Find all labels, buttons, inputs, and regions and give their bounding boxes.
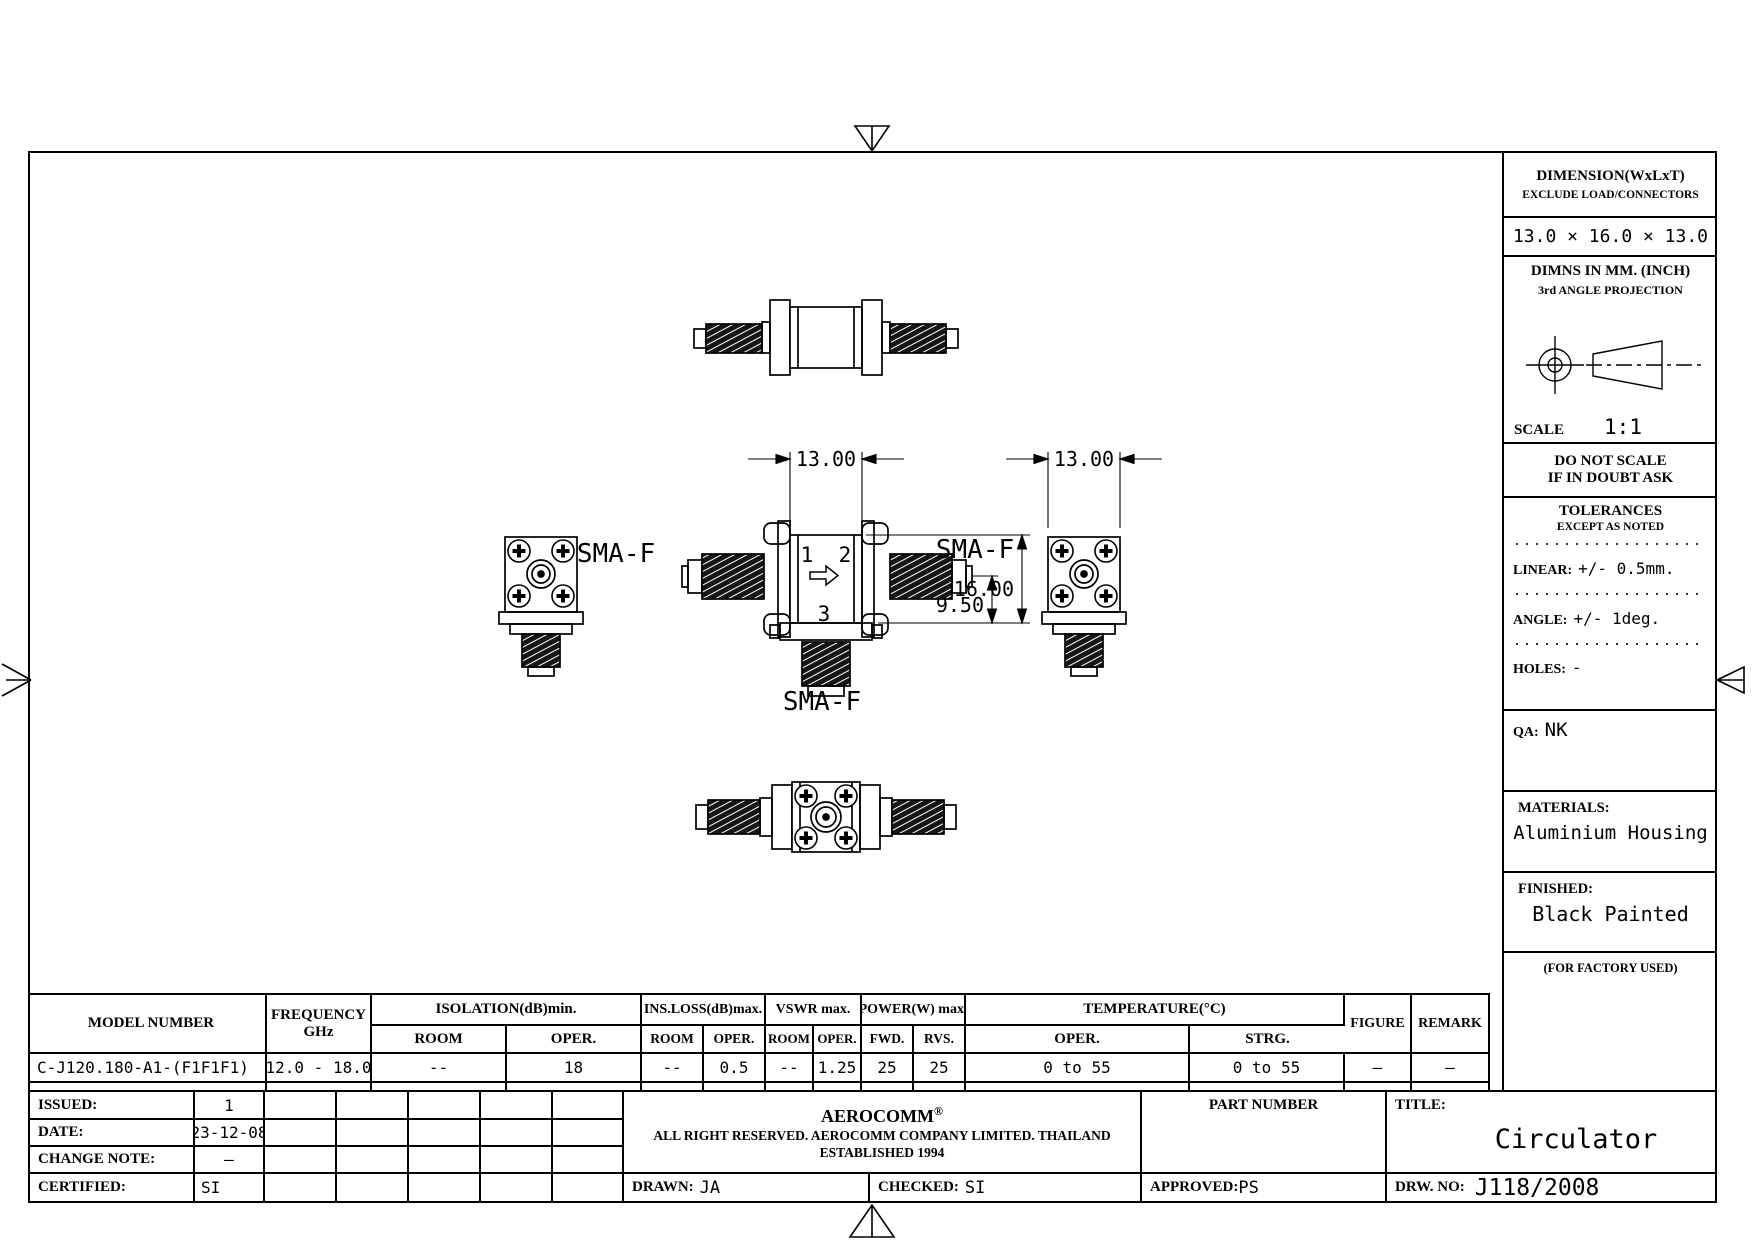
empty-cell xyxy=(553,1147,624,1174)
date-value: 23-12-08 xyxy=(195,1120,265,1147)
frequency-value: 12.0 - 18.0 xyxy=(267,1054,372,1083)
frequency-header-line2: GHz xyxy=(304,1024,334,1041)
part-number-cell: PART NUMBER xyxy=(1142,1092,1387,1174)
title-label: TITLE: xyxy=(1395,1097,1446,1114)
bottom-center-mark xyxy=(850,1205,894,1237)
factory-note: (FOR FACTORY USED) xyxy=(1543,961,1677,976)
panel-projection: DIMNS IN MM. (INCH) 3rd ANGLE PROJECTION… xyxy=(1504,257,1717,444)
insloss-room-header: ROOM xyxy=(642,1026,704,1054)
empty-cell xyxy=(409,1120,481,1147)
company-info: AEROCOMM® ALL RIGHT RESERVED. AEROCOMM C… xyxy=(624,1092,1142,1174)
power-rvs-value: 25 xyxy=(914,1054,966,1083)
qa-label: QA: xyxy=(1513,725,1539,741)
tolerances-title: TOLERANCES xyxy=(1559,503,1662,520)
vswr-oper-header: OPER. xyxy=(814,1026,862,1054)
qa-value: NK xyxy=(1545,719,1568,741)
empty-cell xyxy=(409,1092,481,1120)
panel-materials: MATERIALS: Aluminium Housing xyxy=(1504,792,1717,873)
company-name-text: AEROCOMM xyxy=(821,1106,934,1126)
right-center-mark xyxy=(1717,667,1744,693)
if-in-doubt-text: IF IN DOUBT ASK xyxy=(1548,470,1673,487)
materials-value: Aluminium Housing xyxy=(1513,822,1707,844)
empty-cell xyxy=(265,1174,337,1201)
drw-no-value: J118/2008 xyxy=(1475,1175,1600,1201)
company-rights: ALL RIGHT RESERVED. AEROCOMM COMPANY LIM… xyxy=(653,1128,1110,1144)
drw-no-cell: DRW. NO: J118/2008 xyxy=(1387,1174,1715,1201)
figure-header: FIGURE xyxy=(1345,995,1412,1054)
part-number-label: PART NUMBER xyxy=(1142,1097,1385,1114)
scale-value: 1:1 xyxy=(1604,415,1642,439)
empty-cell xyxy=(481,1120,553,1147)
change-note-label: CHANGE NOTE: xyxy=(30,1147,195,1174)
panel-finished: FINISHED: Black Painted xyxy=(1504,873,1717,953)
left-center-mark xyxy=(2,664,31,696)
angle-label: ANGLE: xyxy=(1513,613,1567,629)
date-label: DATE: xyxy=(30,1120,195,1147)
drawing-title-cell: TITLE: Circulator xyxy=(1387,1092,1715,1174)
approved-cell: APPROVED: PS xyxy=(1142,1174,1387,1201)
empty-cell xyxy=(481,1174,553,1201)
holes-value: - xyxy=(1572,658,1582,677)
empty-cell xyxy=(265,1147,337,1174)
vswr-room-value: -- xyxy=(766,1054,814,1083)
certified-label: CERTIFIED: xyxy=(30,1174,195,1201)
empty-cell xyxy=(337,1174,409,1201)
do-not-scale-text: DO NOT SCALE xyxy=(1554,453,1666,470)
isolation-room-header: ROOM xyxy=(372,1026,507,1054)
linear-value: +/- 0.5mm. xyxy=(1578,559,1674,578)
tolerances-note: EXCEPT AS NOTED xyxy=(1557,521,1664,533)
projection-note: 3rd ANGLE PROJECTION xyxy=(1538,283,1683,298)
materials-label: MATERIALS: xyxy=(1518,800,1610,817)
issued-label: ISSUED: xyxy=(30,1092,195,1120)
scale-label: SCALE xyxy=(1514,422,1564,439)
linear-label: LINEAR: xyxy=(1513,563,1572,579)
empty-cell xyxy=(481,1092,553,1120)
dimension-note: EXCLUDE LOAD/CONNECTORS xyxy=(1522,189,1698,201)
units-note: DIMNS IN MM. (INCH) xyxy=(1531,263,1690,280)
registered-mark: ® xyxy=(934,1104,943,1118)
change-note-value: – xyxy=(195,1147,265,1174)
insloss-group-header: INS.LOSS(dB)max. xyxy=(642,995,766,1026)
drawn-value: JA xyxy=(700,1178,720,1198)
empty-cell xyxy=(553,1092,624,1120)
spec-table: MODEL NUMBER FREQUENCY GHz ISOLATION(dB)… xyxy=(28,993,1490,1092)
issued-value: 1 xyxy=(195,1092,265,1120)
checked-value: SI xyxy=(965,1178,985,1198)
temperature-group-header: TEMPERATURE(°C) xyxy=(966,995,1345,1026)
empty-cell xyxy=(265,1092,337,1120)
temp-oper-value: 0 to 55 xyxy=(966,1054,1190,1083)
insloss-oper-value: 0.5 xyxy=(704,1054,766,1083)
remark-value: – xyxy=(1412,1054,1488,1083)
isolation-oper-header: OPER. xyxy=(507,1026,642,1054)
company-name: AEROCOMM® xyxy=(821,1104,943,1127)
vswr-oper-value: 1.25 xyxy=(814,1054,862,1083)
drw-no-label: DRW. NO: xyxy=(1395,1179,1465,1196)
empty-cell xyxy=(337,1120,409,1147)
finished-label: FINISHED: xyxy=(1518,881,1593,898)
empty-cell xyxy=(337,1092,409,1120)
panel-tolerances: TOLERANCES EXCEPT AS NOTED LINEAR: +/- 0… xyxy=(1504,498,1717,711)
dimension-title: DIMENSION(WxLxT) xyxy=(1536,168,1684,185)
power-rvs-header: RVS. xyxy=(914,1026,966,1054)
panel-qa: QA: NK xyxy=(1504,711,1717,792)
title-block: ISSUED: 1 DATE: 23-12-08 CHANGE NOTE: – … xyxy=(28,1090,1717,1203)
vswr-group-header: VSWR max. xyxy=(766,995,862,1026)
approved-value: PS xyxy=(1238,1178,1258,1198)
panel-do-not-scale: DO NOT SCALE IF IN DOUBT ASK xyxy=(1504,444,1717,498)
vswr-room-header: ROOM xyxy=(766,1026,814,1054)
insloss-room-value: -- xyxy=(642,1054,704,1083)
temp-strg-value: 0 to 55 xyxy=(1190,1054,1345,1083)
empty-cell xyxy=(409,1174,481,1201)
isolation-oper-value: 18 xyxy=(507,1054,642,1083)
power-fwd-value: 25 xyxy=(862,1054,914,1083)
isolation-room-value: -- xyxy=(372,1054,507,1083)
figure-value: – xyxy=(1345,1054,1412,1083)
checked-label: CHECKED: xyxy=(878,1179,959,1196)
dimension-value: 13.0 × 16.0 × 13.0 xyxy=(1513,226,1708,247)
empty-cell xyxy=(409,1147,481,1174)
angle-value: +/- 1deg. xyxy=(1573,609,1660,628)
finished-value: Black Painted xyxy=(1532,902,1689,926)
power-group-header: POWER(W) max. xyxy=(862,995,966,1026)
holes-label: HOLES: xyxy=(1513,662,1566,678)
temp-oper-header: OPER. xyxy=(966,1026,1190,1054)
panel-dimension: DIMENSION(WxLxT) EXCLUDE LOAD/CONNECTORS xyxy=(1504,153,1717,218)
temp-strg-header: STRG. xyxy=(1190,1026,1345,1054)
drawn-label: DRAWN: xyxy=(632,1179,694,1196)
model-number-value: C-J120.180-A1-(F1F1F1) xyxy=(30,1054,267,1083)
company-established: ESTABLISHED 1994 xyxy=(820,1145,945,1161)
power-fwd-header: FWD. xyxy=(862,1026,914,1054)
model-number-header: MODEL NUMBER xyxy=(30,995,267,1054)
insloss-oper-header: OPER. xyxy=(704,1026,766,1054)
checked-cell: CHECKED: SI xyxy=(870,1174,1142,1201)
engineering-drawing-sheet: { "right_panel": { "dimension_title": "D… xyxy=(0,0,1754,1240)
top-center-mark xyxy=(855,126,889,151)
panel-factory-note: (FOR FACTORY USED) xyxy=(1504,953,1717,1090)
panel-dimension-value: 13.0 × 16.0 × 13.0 xyxy=(1504,218,1717,257)
empty-cell xyxy=(337,1147,409,1174)
frequency-header: FREQUENCY GHz xyxy=(267,995,372,1054)
approved-label: APPROVED: xyxy=(1150,1179,1238,1196)
isolation-group-header: ISOLATION(dB)min. xyxy=(372,995,642,1026)
empty-cell xyxy=(481,1147,553,1174)
info-panel: DIMENSION(WxLxT) EXCLUDE LOAD/CONNECTORS… xyxy=(1502,153,1717,1090)
drawn-cell: DRAWN: JA xyxy=(624,1174,870,1201)
remark-header: REMARK xyxy=(1412,995,1488,1054)
drawing-title: Circulator xyxy=(1387,1124,1715,1155)
empty-cell xyxy=(553,1120,624,1147)
empty-cell xyxy=(553,1174,624,1201)
frequency-header-line1: FREQUENCY xyxy=(271,1007,366,1024)
certified-value: SI xyxy=(195,1174,265,1201)
empty-cell xyxy=(265,1120,337,1147)
